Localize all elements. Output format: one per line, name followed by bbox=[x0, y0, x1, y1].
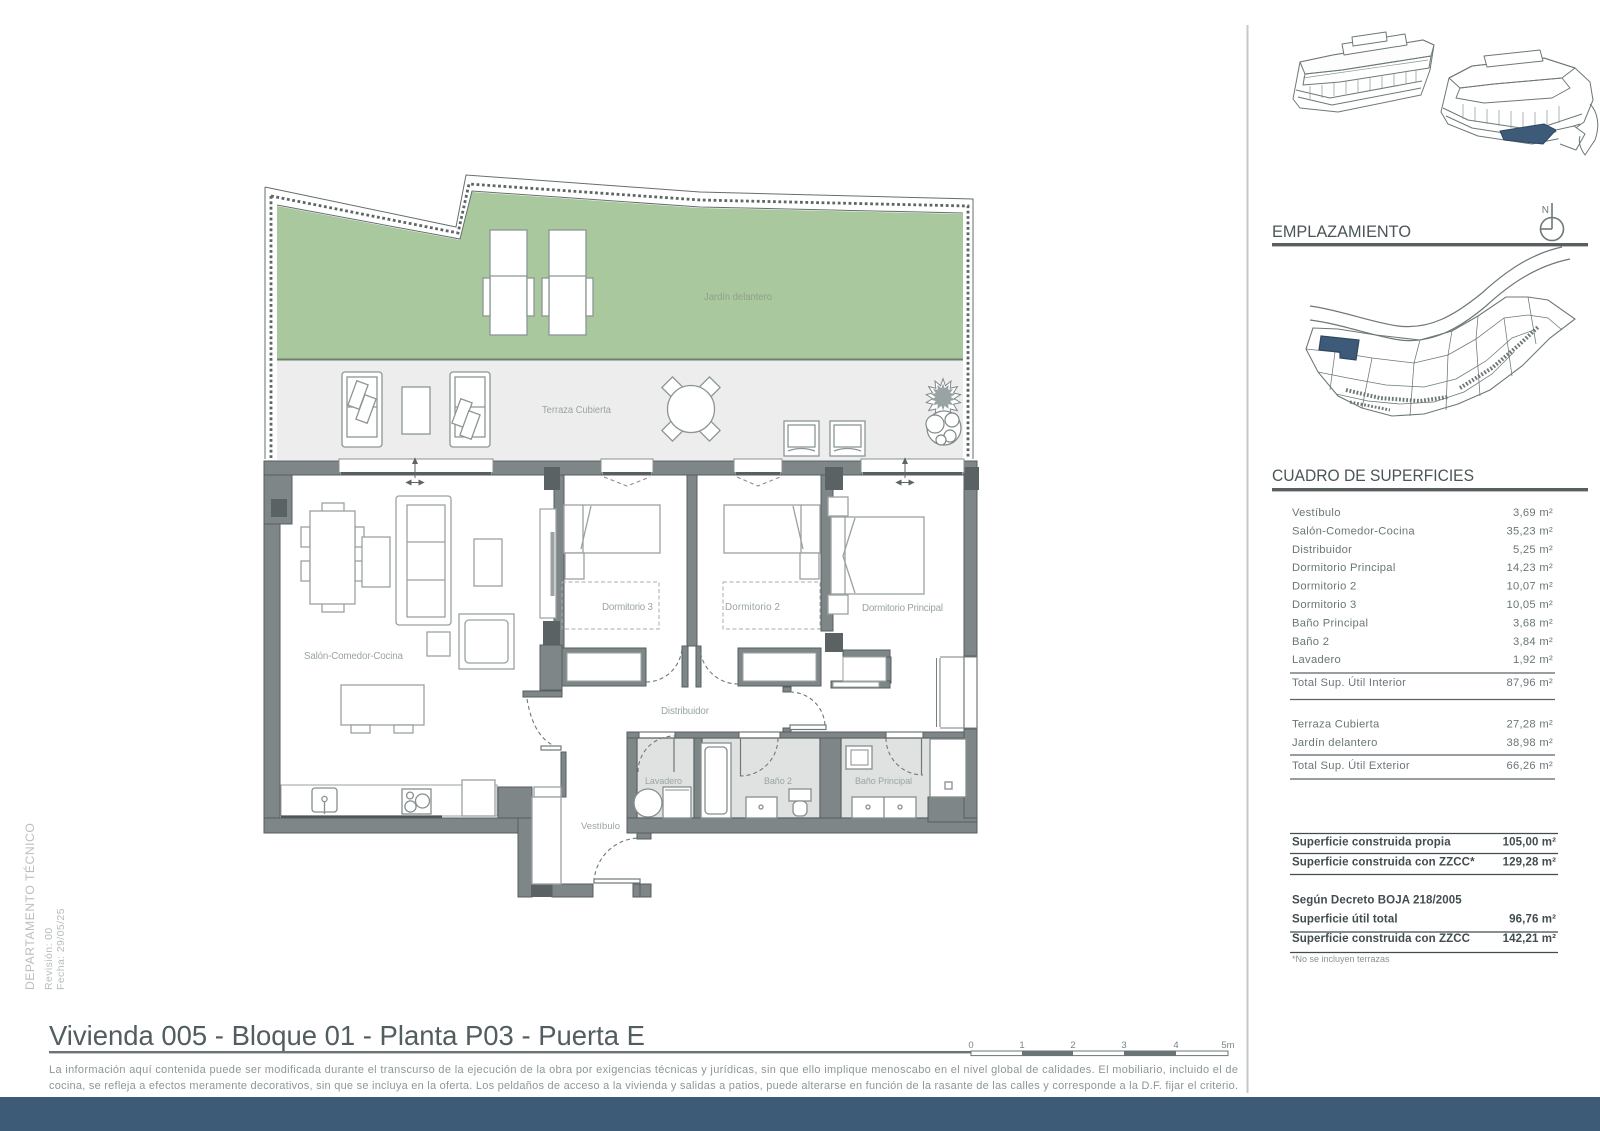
svg-text:Baño Principal: Baño Principal bbox=[855, 776, 912, 786]
svg-text:Dormitorio 2: Dormitorio 2 bbox=[725, 602, 780, 613]
svg-text:Dormitorio 2: Dormitorio 2 bbox=[1292, 581, 1357, 593]
svg-text:Vivienda 005 - Bloque 01 - Pla: Vivienda 005 - Bloque 01 - Planta P03 - … bbox=[49, 1020, 645, 1051]
svg-text:Total Sup. Útil Exterior: Total Sup. Útil Exterior bbox=[1292, 759, 1410, 772]
svg-text:Superficie construida con ZZCC: Superficie construida con ZZCC bbox=[1292, 933, 1470, 945]
svg-text:Lavadero: Lavadero bbox=[1292, 654, 1341, 666]
svg-text:35,23 m²: 35,23 m² bbox=[1506, 525, 1553, 537]
svg-text:Vestíbulo: Vestíbulo bbox=[581, 821, 620, 832]
svg-text:DEPARTAMENTO TÉCNICO: DEPARTAMENTO TÉCNICO bbox=[22, 823, 37, 990]
svg-text:38,98 m²: 38,98 m² bbox=[1506, 737, 1553, 749]
svg-text:Distribuidor: Distribuidor bbox=[1292, 544, 1352, 556]
svg-text:Baño Principal: Baño Principal bbox=[1292, 617, 1368, 629]
svg-text:3,68 m²: 3,68 m² bbox=[1513, 617, 1553, 629]
svg-text:Terraza Cubierta: Terraza Cubierta bbox=[542, 405, 612, 416]
svg-text:2: 2 bbox=[1070, 1040, 1075, 1051]
svg-text:Salón-Comedor-Cocina: Salón-Comedor-Cocina bbox=[304, 651, 404, 662]
svg-text:105,00 m²: 105,00 m² bbox=[1503, 837, 1556, 849]
svg-text:Jardín delantero: Jardín delantero bbox=[1292, 737, 1378, 749]
svg-text:3,84 m²: 3,84 m² bbox=[1513, 636, 1553, 648]
svg-text:10,05 m²: 10,05 m² bbox=[1506, 599, 1553, 611]
svg-text:0: 0 bbox=[968, 1040, 973, 1051]
svg-text:cocina, se refleja a efectos m: cocina, se refleja a efectos meramente d… bbox=[49, 1080, 1238, 1092]
svg-text:Dormitorio 3: Dormitorio 3 bbox=[602, 602, 654, 613]
svg-text:1,92 m²: 1,92 m² bbox=[1513, 654, 1553, 666]
svg-text:27,28 m²: 27,28 m² bbox=[1506, 719, 1553, 731]
svg-text:Según Decreto BOJA 218/2005: Según Decreto BOJA 218/2005 bbox=[1292, 895, 1462, 907]
svg-text:N: N bbox=[1542, 205, 1549, 216]
svg-text:Total Sup. Útil Interior: Total Sup. Útil Interior bbox=[1292, 676, 1406, 689]
svg-text:Jardín delantero: Jardín delantero bbox=[704, 292, 773, 303]
svg-text:*No se incluyen terrazas: *No se incluyen terrazas bbox=[1292, 954, 1390, 964]
svg-text:Lavadero: Lavadero bbox=[645, 776, 682, 786]
svg-text:4: 4 bbox=[1173, 1040, 1178, 1051]
svg-text:Dormitorio Principal: Dormitorio Principal bbox=[1292, 562, 1396, 574]
svg-text:CUADRO DE SUPERFICIES: CUADRO DE SUPERFICIES bbox=[1272, 467, 1474, 485]
svg-text:Distribuidor: Distribuidor bbox=[661, 706, 710, 717]
svg-text:3: 3 bbox=[1121, 1040, 1126, 1051]
svg-text:Dormitorio 3: Dormitorio 3 bbox=[1292, 599, 1357, 611]
svg-text:Superficie construida propia: Superficie construida propia bbox=[1292, 837, 1451, 849]
svg-text:Superficie construida con ZZCC: Superficie construida con ZZCC* bbox=[1292, 857, 1475, 869]
svg-text:14,23 m²: 14,23 m² bbox=[1506, 562, 1553, 574]
svg-text:Baño 2: Baño 2 bbox=[764, 776, 792, 786]
svg-text:Baño 2: Baño 2 bbox=[1292, 636, 1329, 648]
svg-text:66,26 m²: 66,26 m² bbox=[1506, 760, 1553, 772]
svg-text:Dormitorio Principal: Dormitorio Principal bbox=[862, 603, 943, 614]
svg-text:96,76 m²: 96,76 m² bbox=[1509, 914, 1556, 926]
svg-text:La información aquí contenida: La información aquí contenida puede ser … bbox=[49, 1064, 1238, 1076]
svg-text:Fecha: 29/05/25: Fecha: 29/05/25 bbox=[55, 908, 67, 990]
svg-text:5,25 m²: 5,25 m² bbox=[1513, 544, 1553, 556]
svg-text:Superficie útil total: Superficie útil total bbox=[1292, 914, 1398, 926]
svg-text:Revisión: 00: Revisión: 00 bbox=[43, 927, 55, 990]
svg-text:1: 1 bbox=[1019, 1040, 1024, 1051]
svg-text:142,21 m²: 142,21 m² bbox=[1503, 933, 1556, 945]
svg-text:Vestíbulo: Vestíbulo bbox=[1292, 507, 1341, 519]
svg-text:87,96 m²: 87,96 m² bbox=[1506, 677, 1553, 689]
svg-text:5m: 5m bbox=[1221, 1040, 1234, 1051]
svg-text:EMPLAZAMIENTO: EMPLAZAMIENTO bbox=[1272, 223, 1411, 241]
svg-text:129,28 m²: 129,28 m² bbox=[1503, 857, 1556, 869]
svg-text:3,69 m²: 3,69 m² bbox=[1513, 507, 1553, 519]
svg-text:10,07 m²: 10,07 m² bbox=[1506, 581, 1553, 593]
svg-text:Terraza Cubierta: Terraza Cubierta bbox=[1292, 719, 1380, 731]
svg-text:Salón-Comedor-Cocina: Salón-Comedor-Cocina bbox=[1292, 525, 1415, 537]
